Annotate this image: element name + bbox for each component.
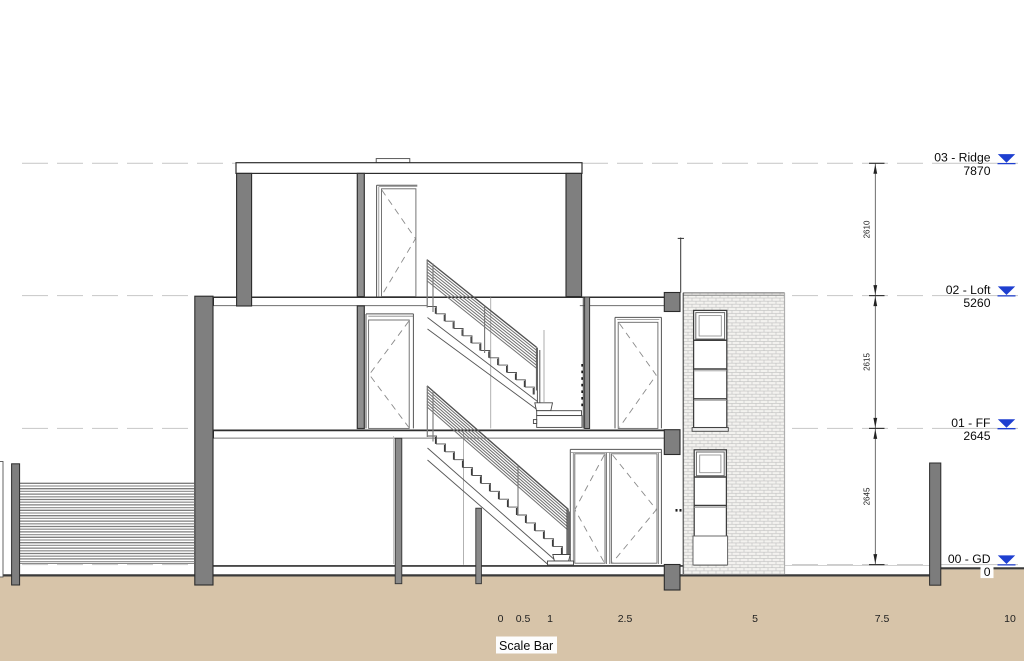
svg-text:1: 1 [547, 613, 553, 625]
svg-text:02 - Loft: 02 - Loft [946, 283, 991, 297]
svg-text:0: 0 [984, 565, 991, 579]
svg-text:00 - GD: 00 - GD [948, 552, 991, 566]
svg-text:0: 0 [498, 613, 504, 625]
svg-text:7870: 7870 [963, 164, 990, 178]
svg-text:10: 10 [1004, 613, 1016, 625]
svg-text:01 - FF: 01 - FF [951, 416, 990, 430]
svg-text:Scale Bar: Scale Bar [499, 639, 553, 653]
svg-text:2615: 2615 [862, 353, 871, 371]
svg-text:5260: 5260 [963, 296, 990, 310]
svg-text:0.5: 0.5 [516, 613, 531, 625]
svg-text:2645: 2645 [862, 487, 871, 505]
svg-text:5: 5 [752, 613, 758, 625]
svg-text:2.5: 2.5 [618, 613, 633, 625]
svg-text:03 - Ridge: 03 - Ridge [934, 151, 990, 165]
svg-text:2610: 2610 [862, 220, 871, 238]
svg-text:7.5: 7.5 [875, 613, 890, 625]
svg-text:2645: 2645 [963, 429, 990, 443]
